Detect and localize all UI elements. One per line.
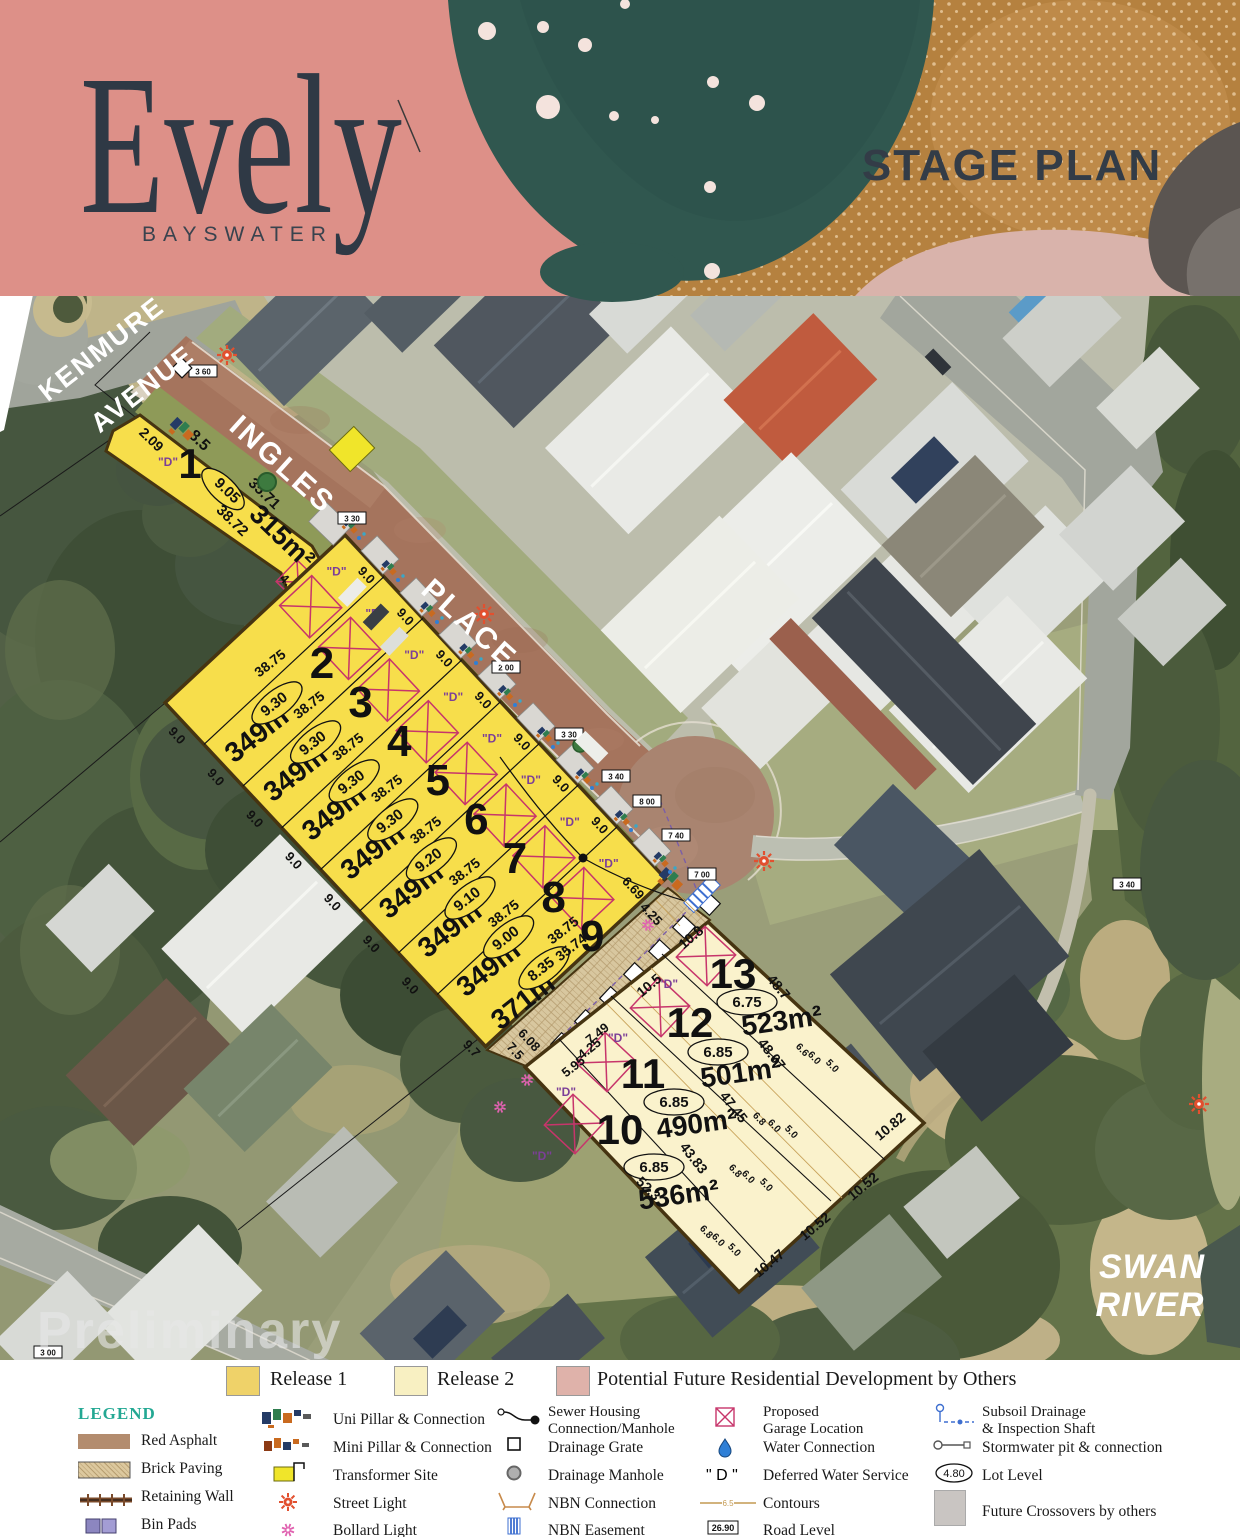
svg-text:6.75: 6.75 (732, 994, 761, 1011)
svg-text:7 00: 7 00 (694, 871, 710, 880)
svg-text:4.80: 4.80 (943, 1468, 964, 1480)
svg-text:SWAN: SWAN (1099, 1248, 1205, 1286)
svg-text:3 40: 3 40 (608, 773, 624, 782)
svg-text:6.85: 6.85 (703, 1044, 732, 1061)
svg-text:"D": "D" (608, 1031, 628, 1045)
svg-text:"D": "D" (326, 565, 346, 579)
svg-text:8: 8 (541, 873, 565, 922)
svg-text:"D": "D" (599, 857, 619, 871)
svg-text:26.90: 26.90 (712, 1523, 735, 1533)
svg-text:3: 3 (348, 678, 372, 727)
svg-text:BAYSWATER: BAYSWATER (142, 223, 333, 246)
svg-text:6: 6 (464, 795, 488, 844)
svg-text:STAGE PLAN: STAGE PLAN (862, 141, 1162, 190)
svg-text:RIVER: RIVER (1096, 1286, 1205, 1324)
svg-text:5: 5 (426, 756, 450, 805)
svg-text:2: 2 (310, 639, 334, 688)
svg-text:"D": "D" (521, 773, 541, 787)
svg-text:12: 12 (667, 999, 714, 1046)
svg-text:7 40: 7 40 (668, 832, 684, 841)
svg-text:"D": "D" (443, 690, 463, 704)
svg-text:3 40: 3 40 (1119, 881, 1135, 890)
svg-text:6.5: 6.5 (722, 1499, 734, 1508)
svg-text:"D": "D" (560, 815, 580, 829)
svg-text:"D": "D" (404, 648, 424, 662)
svg-text:"D": "D" (158, 455, 178, 469)
svg-text:4: 4 (387, 717, 412, 766)
svg-text:3 30: 3 30 (561, 731, 577, 740)
svg-text:7: 7 (503, 834, 527, 883)
svg-text:3 60: 3 60 (195, 368, 211, 377)
svg-text:"D": "D" (532, 1149, 552, 1163)
svg-text:"D": "D" (482, 731, 502, 745)
svg-text:6.85: 6.85 (659, 1094, 688, 1111)
svg-text:8 00: 8 00 (639, 798, 655, 807)
svg-text:3 30: 3 30 (344, 515, 360, 524)
svg-text:"D": "D" (556, 1085, 576, 1099)
svg-text:10: 10 (597, 1106, 644, 1153)
svg-text:Preliminary: Preliminary (37, 1302, 342, 1360)
svg-text:11: 11 (621, 1050, 665, 1097)
